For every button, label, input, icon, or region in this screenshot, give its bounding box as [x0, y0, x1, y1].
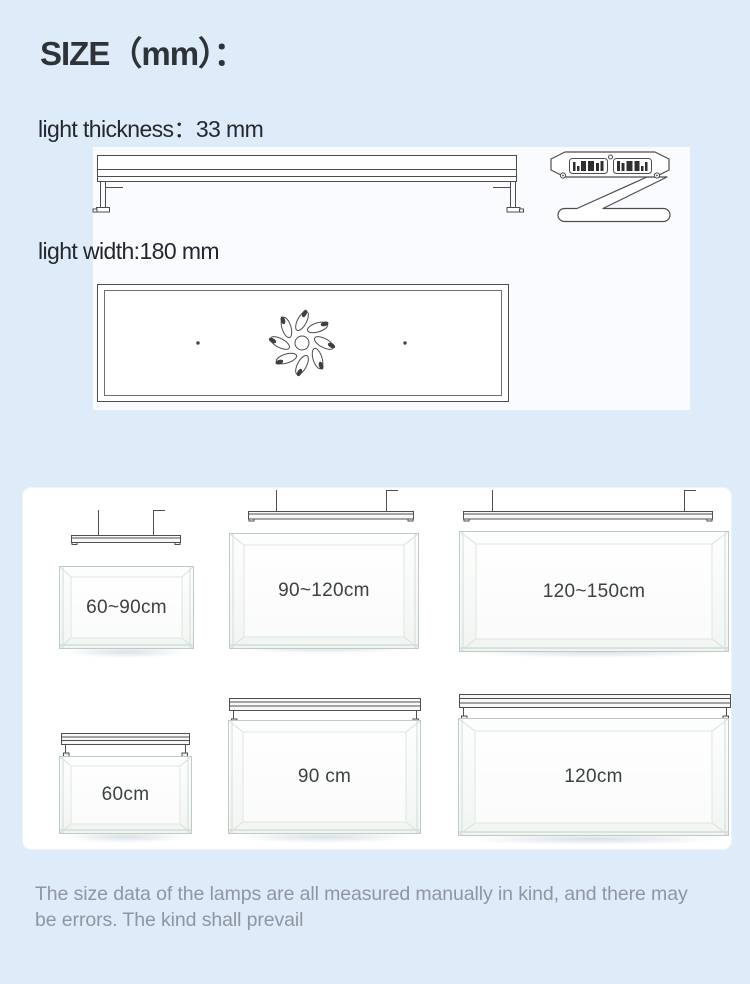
tank-size-label: 120cm — [458, 718, 729, 836]
hanging-lamp-drawing — [462, 488, 714, 522]
tank-size-label: 60~90cm — [59, 566, 194, 649]
tank-size-label: 90 cm — [228, 720, 421, 834]
tank-size-label: 60cm — [59, 756, 192, 834]
tank-size-panel: 60~90cm 90~120cm — [22, 487, 732, 850]
tank-60cm: 60cm — [59, 756, 192, 834]
tank-size-label: 90~120cm — [229, 533, 419, 649]
tank-size-label: 120~150cm — [459, 531, 729, 652]
lamp-top-view-drawing — [93, 280, 513, 406]
disclaimer-text: The size data of the lamps are all measu… — [35, 882, 711, 934]
hanging-lamp-drawing — [247, 488, 415, 522]
tank-60-90cm: 60~90cm — [59, 566, 194, 649]
mounted-lamp-drawing — [457, 693, 733, 721]
light-width-label: light width:180 mm — [38, 238, 219, 265]
tank-90cm: 90 cm — [228, 720, 421, 834]
light-thickness-label: light thickness：33 mm — [38, 110, 263, 144]
page-title: SIZE（mm）： — [40, 27, 246, 75]
mounted-lamp-drawing — [59, 732, 192, 759]
lamp-z-bracket-side-drawing — [548, 149, 683, 227]
hanging-lamp-drawing — [70, 504, 182, 546]
product-size-page: SIZE（mm）： light thickness：33 mm — [0, 0, 750, 984]
tank-120-150cm: 120~150cm — [459, 531, 729, 652]
tank-90-120cm: 90~120cm — [229, 533, 419, 649]
lamp-front-view-drawing — [90, 149, 550, 221]
tank-120cm: 120cm — [458, 718, 729, 836]
